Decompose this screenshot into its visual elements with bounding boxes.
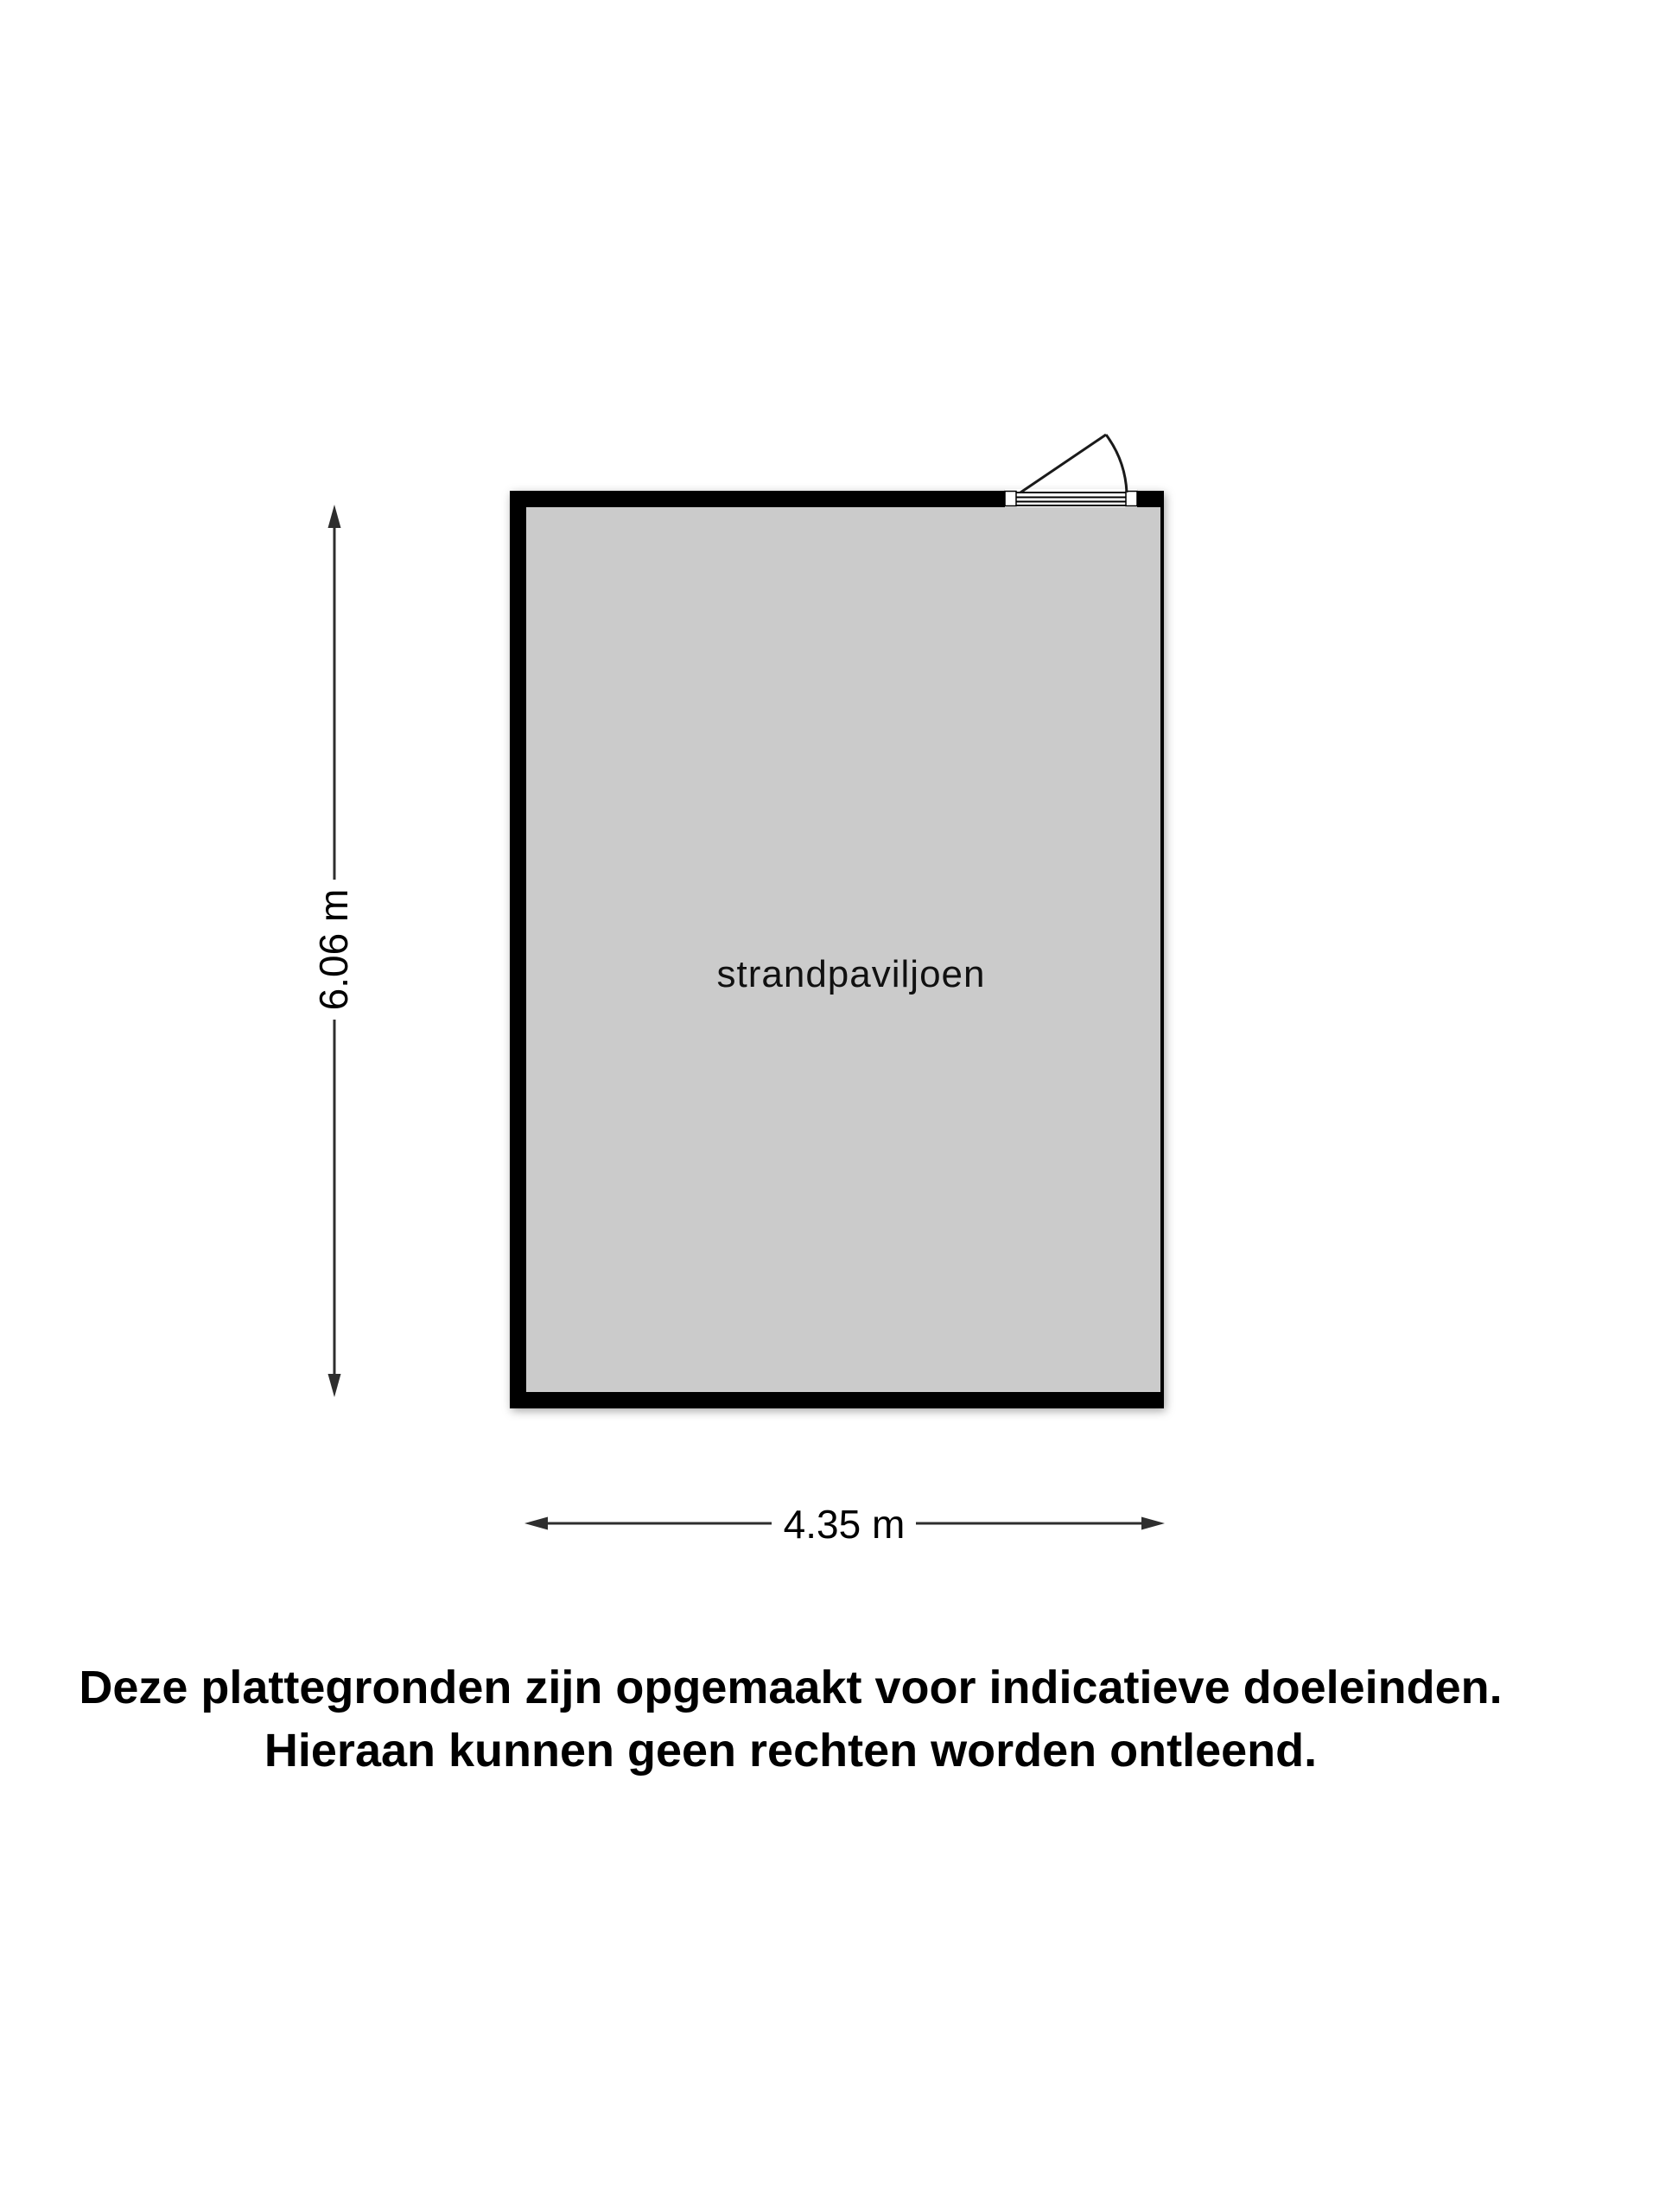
disclaimer-line-2: Hieraan kunnen geen rechten worden ontle… bbox=[0, 1719, 1581, 1783]
arrow-down-icon bbox=[328, 1374, 341, 1397]
arrow-left-icon bbox=[524, 1517, 548, 1530]
height-dimension-label: 6.06 m bbox=[310, 889, 357, 1011]
floor-plan-canvas: strandpaviljoen 6.06 m 4.35 m Deze platt… bbox=[0, 0, 1659, 2212]
disclaimer: Deze plattegronden zijn opgemaakt voor i… bbox=[0, 1656, 1581, 1783]
door-jamb-right bbox=[1126, 492, 1137, 506]
room-label: strandpaviljoen bbox=[717, 953, 986, 996]
door-swing-arc-icon bbox=[1020, 435, 1127, 493]
width-dimension-label: 4.35 m bbox=[784, 1501, 906, 1548]
plan-overlay bbox=[0, 0, 1659, 2212]
disclaimer-line-1: Deze plattegronden zijn opgemaakt voor i… bbox=[0, 1656, 1581, 1719]
arrow-right-icon bbox=[1141, 1517, 1165, 1530]
door-jamb-left bbox=[1005, 492, 1016, 506]
door-leaf-stripes bbox=[1016, 493, 1126, 505]
arrow-up-icon bbox=[328, 505, 341, 528]
